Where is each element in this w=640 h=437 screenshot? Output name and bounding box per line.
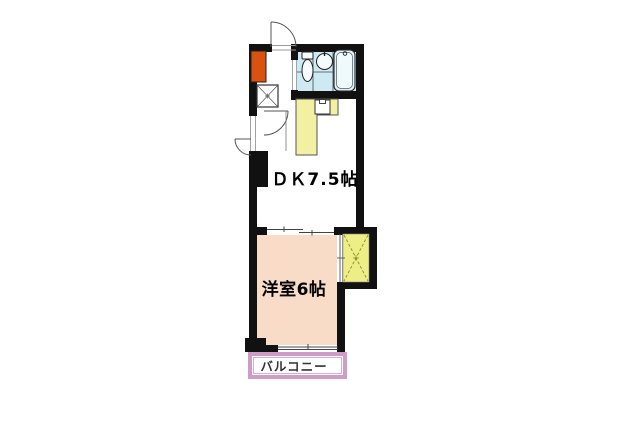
bathtub-icon (334, 50, 355, 91)
kitchen-faucet (320, 100, 326, 104)
floor-plan: ＤＫ7.5帖 洋室6帖 バルコニー (0, 0, 640, 437)
sliding-door (267, 227, 334, 236)
wall-top-right (296, 44, 364, 52)
wall-closet-right (369, 227, 377, 289)
shoe-cabinet (251, 51, 266, 82)
entrance-door-arc (271, 22, 296, 47)
western-room-label: 洋室6帖 (242, 275, 346, 300)
service-hatch-arc (235, 139, 251, 155)
wall-corner-block (245, 338, 266, 352)
toilet-icon (302, 52, 313, 82)
service-hatch (235, 139, 251, 155)
wall-divider-left (249, 227, 267, 235)
interior-door (264, 111, 288, 151)
wall-bath-bottom (291, 91, 364, 99)
wall-right-upper (356, 44, 364, 234)
balcony-label: バルコニー (242, 356, 346, 375)
interior-door-arc (264, 111, 288, 135)
wall-bottom-right (338, 345, 345, 352)
bathtub-inner (337, 53, 353, 89)
kitchen-counter (296, 99, 338, 155)
toilet-tank (302, 52, 313, 59)
toilet-bowl (302, 60, 313, 82)
dk-room-label: ＤＫ7.5帖 (263, 165, 367, 190)
entrance-door (271, 22, 296, 47)
washing-machine-space (257, 85, 278, 107)
wall-bath-left-top (291, 44, 298, 60)
